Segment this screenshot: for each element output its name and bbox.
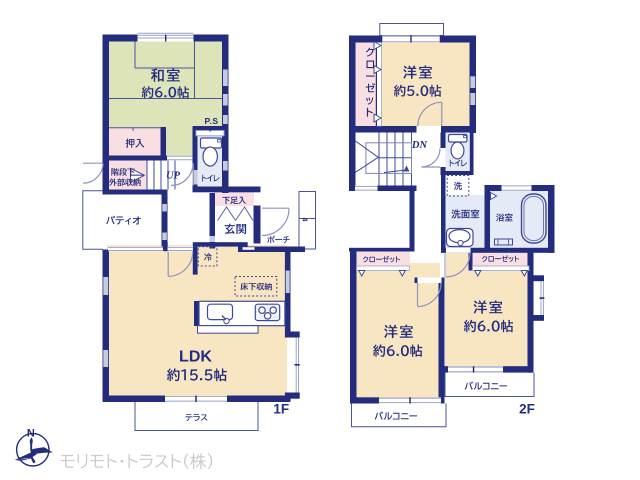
svg-text:DN: DN [411,140,428,151]
svg-text:P.S: P.S [204,116,218,126]
svg-text:2F: 2F [519,402,535,417]
svg-text:1F: 1F [273,402,289,417]
svg-text:LDK: LDK [179,349,212,366]
svg-text:UP: UP [166,170,181,181]
svg-text:4: 4 [300,218,307,222]
svg-text:N: N [27,428,35,440]
